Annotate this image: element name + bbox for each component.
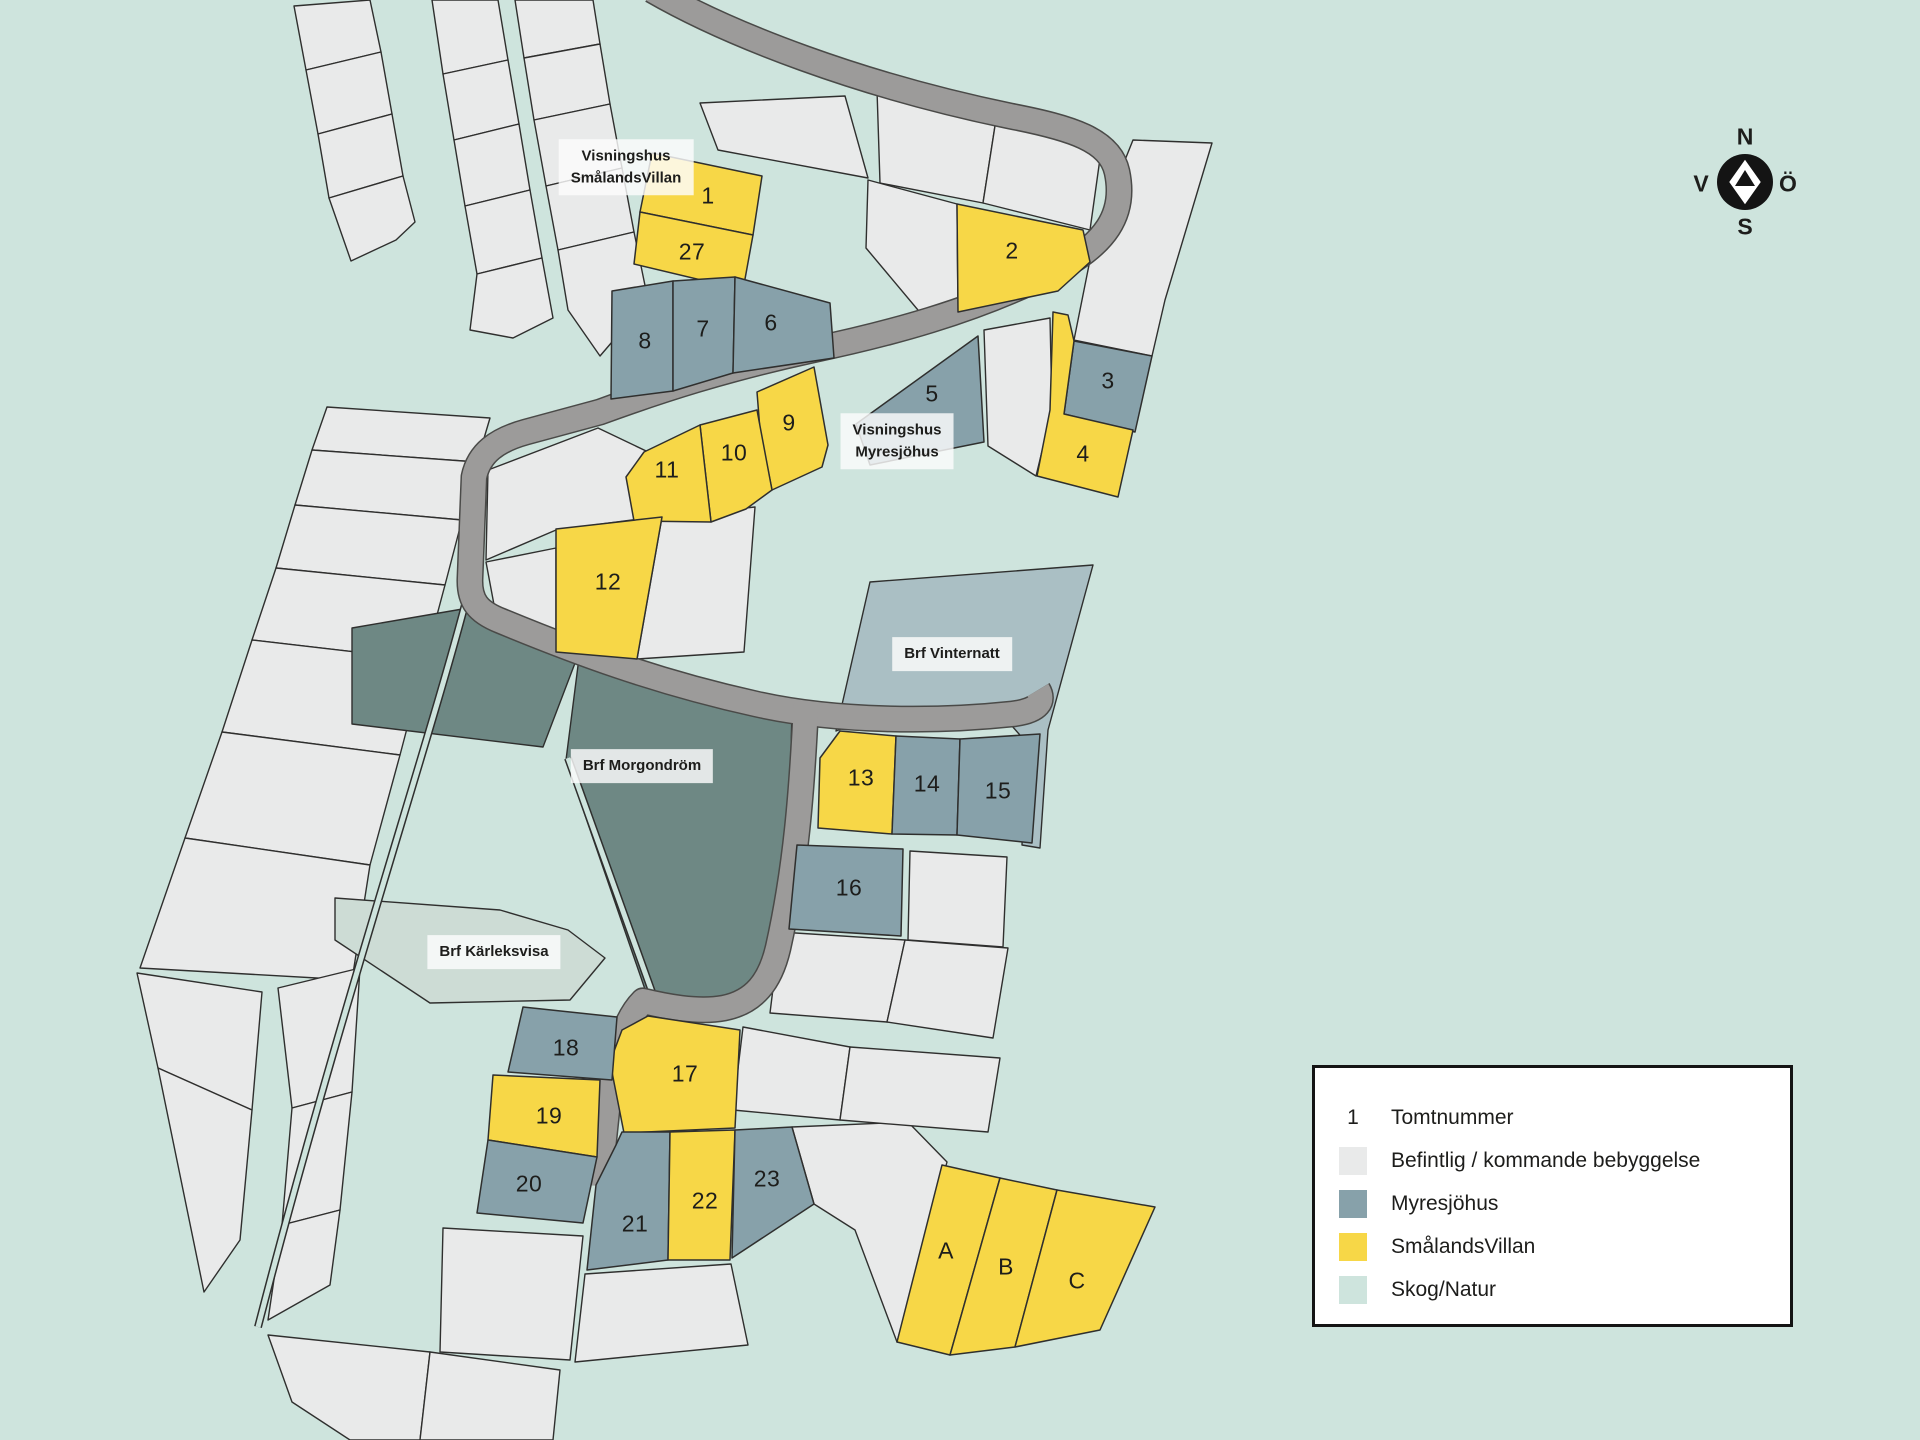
parcel-befintlig: [278, 968, 360, 1108]
plot-18[interactable]: [508, 1007, 617, 1080]
legend-row-befintlig: Befintlig / kommande bebyggelse: [1339, 1139, 1790, 1182]
compass-west-label: V: [1693, 171, 1708, 198]
legend-row-skog: Skog/Natur: [1339, 1268, 1790, 1311]
parcel-befintlig: [420, 1352, 560, 1440]
legend-key-number: 1: [1339, 1104, 1367, 1132]
parcel-befintlig: [440, 1228, 583, 1360]
compass-north-label: N: [1737, 124, 1754, 151]
plot-7[interactable]: [673, 277, 735, 391]
plot-5[interactable]: [856, 336, 984, 465]
plot-16[interactable]: [789, 845, 903, 936]
parcel-befintlig: [268, 1335, 430, 1440]
parcel-befintlig: [840, 1047, 1000, 1132]
parcel-befintlig: [700, 96, 868, 178]
plot-6[interactable]: [733, 277, 834, 373]
parcel-befintlig: [733, 1027, 850, 1120]
legend-swatch-myresjohus: [1339, 1190, 1367, 1218]
parcel-befintlig: [575, 1264, 748, 1362]
compass-east-label: Ö: [1779, 171, 1797, 198]
plot-11[interactable]: [626, 425, 711, 522]
legend-row-smalandsvillan: SmålandsVillan: [1339, 1225, 1790, 1268]
compass-south-label: S: [1737, 214, 1752, 241]
legend-swatch-smalandsvillan: [1339, 1233, 1367, 1261]
plot-15[interactable]: [957, 734, 1040, 843]
legend-row-myresjohus: Myresjöhus: [1339, 1182, 1790, 1225]
plot-22[interactable]: [668, 1130, 735, 1260]
legend-swatch-befintlig: [1339, 1147, 1367, 1175]
parcel-befintlig: [866, 180, 958, 322]
legend: 1 Tomtnummer Befintlig / kommande bebygg…: [1312, 1065, 1793, 1327]
plot-14[interactable]: [892, 736, 960, 835]
parcel-befintlig: [887, 940, 1008, 1038]
legend-row-tomtnummer: 1 Tomtnummer: [1339, 1096, 1790, 1139]
plot-13[interactable]: [818, 731, 896, 834]
plot-8[interactable]: [611, 281, 673, 399]
plot-17[interactable]: [610, 1016, 740, 1133]
compass: N S V Ö: [1680, 117, 1810, 247]
parcel-befintlig: [268, 1210, 340, 1320]
parcel-befintlig: [908, 851, 1007, 947]
legend-swatch-skog: [1339, 1276, 1367, 1304]
